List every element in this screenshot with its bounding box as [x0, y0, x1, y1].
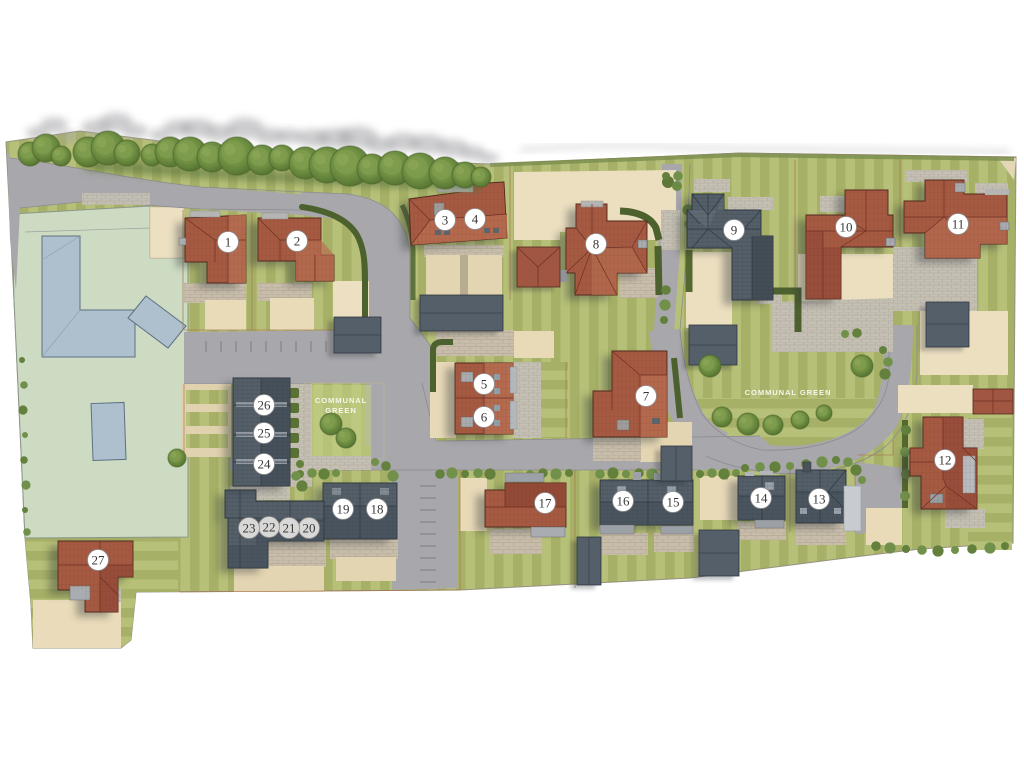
svg-text:10: 10 — [840, 220, 853, 235]
svg-text:COMMUNAL: COMMUNAL — [315, 396, 367, 405]
svg-text:12: 12 — [939, 453, 952, 468]
svg-text:13: 13 — [813, 492, 826, 507]
svg-text:26: 26 — [258, 398, 272, 413]
svg-text:9: 9 — [731, 223, 738, 238]
svg-text:27: 27 — [92, 553, 106, 568]
svg-text:15: 15 — [667, 495, 680, 510]
svg-text:24: 24 — [258, 457, 272, 472]
svg-text:19: 19 — [337, 502, 350, 517]
svg-text:GREEN: GREEN — [325, 406, 357, 415]
svg-text:16: 16 — [617, 494, 631, 509]
svg-text:18: 18 — [371, 502, 384, 517]
svg-text:5: 5 — [481, 377, 488, 392]
svg-text:COMMUNAL GREEN: COMMUNAL GREEN — [745, 388, 832, 397]
svg-text:1: 1 — [225, 235, 232, 250]
svg-text:8: 8 — [593, 237, 600, 252]
svg-text:22: 22 — [263, 520, 276, 535]
svg-text:25: 25 — [258, 426, 271, 441]
svg-text:20: 20 — [303, 521, 316, 536]
svg-text:17: 17 — [539, 496, 553, 511]
svg-text:2: 2 — [294, 234, 301, 249]
svg-text:23: 23 — [243, 521, 256, 536]
svg-text:3: 3 — [442, 213, 449, 228]
svg-text:7: 7 — [643, 389, 650, 404]
svg-text:21: 21 — [283, 521, 296, 536]
svg-text:4: 4 — [472, 212, 479, 227]
svg-text:6: 6 — [481, 410, 488, 425]
svg-text:14: 14 — [755, 491, 769, 506]
svg-text:11: 11 — [952, 217, 965, 232]
